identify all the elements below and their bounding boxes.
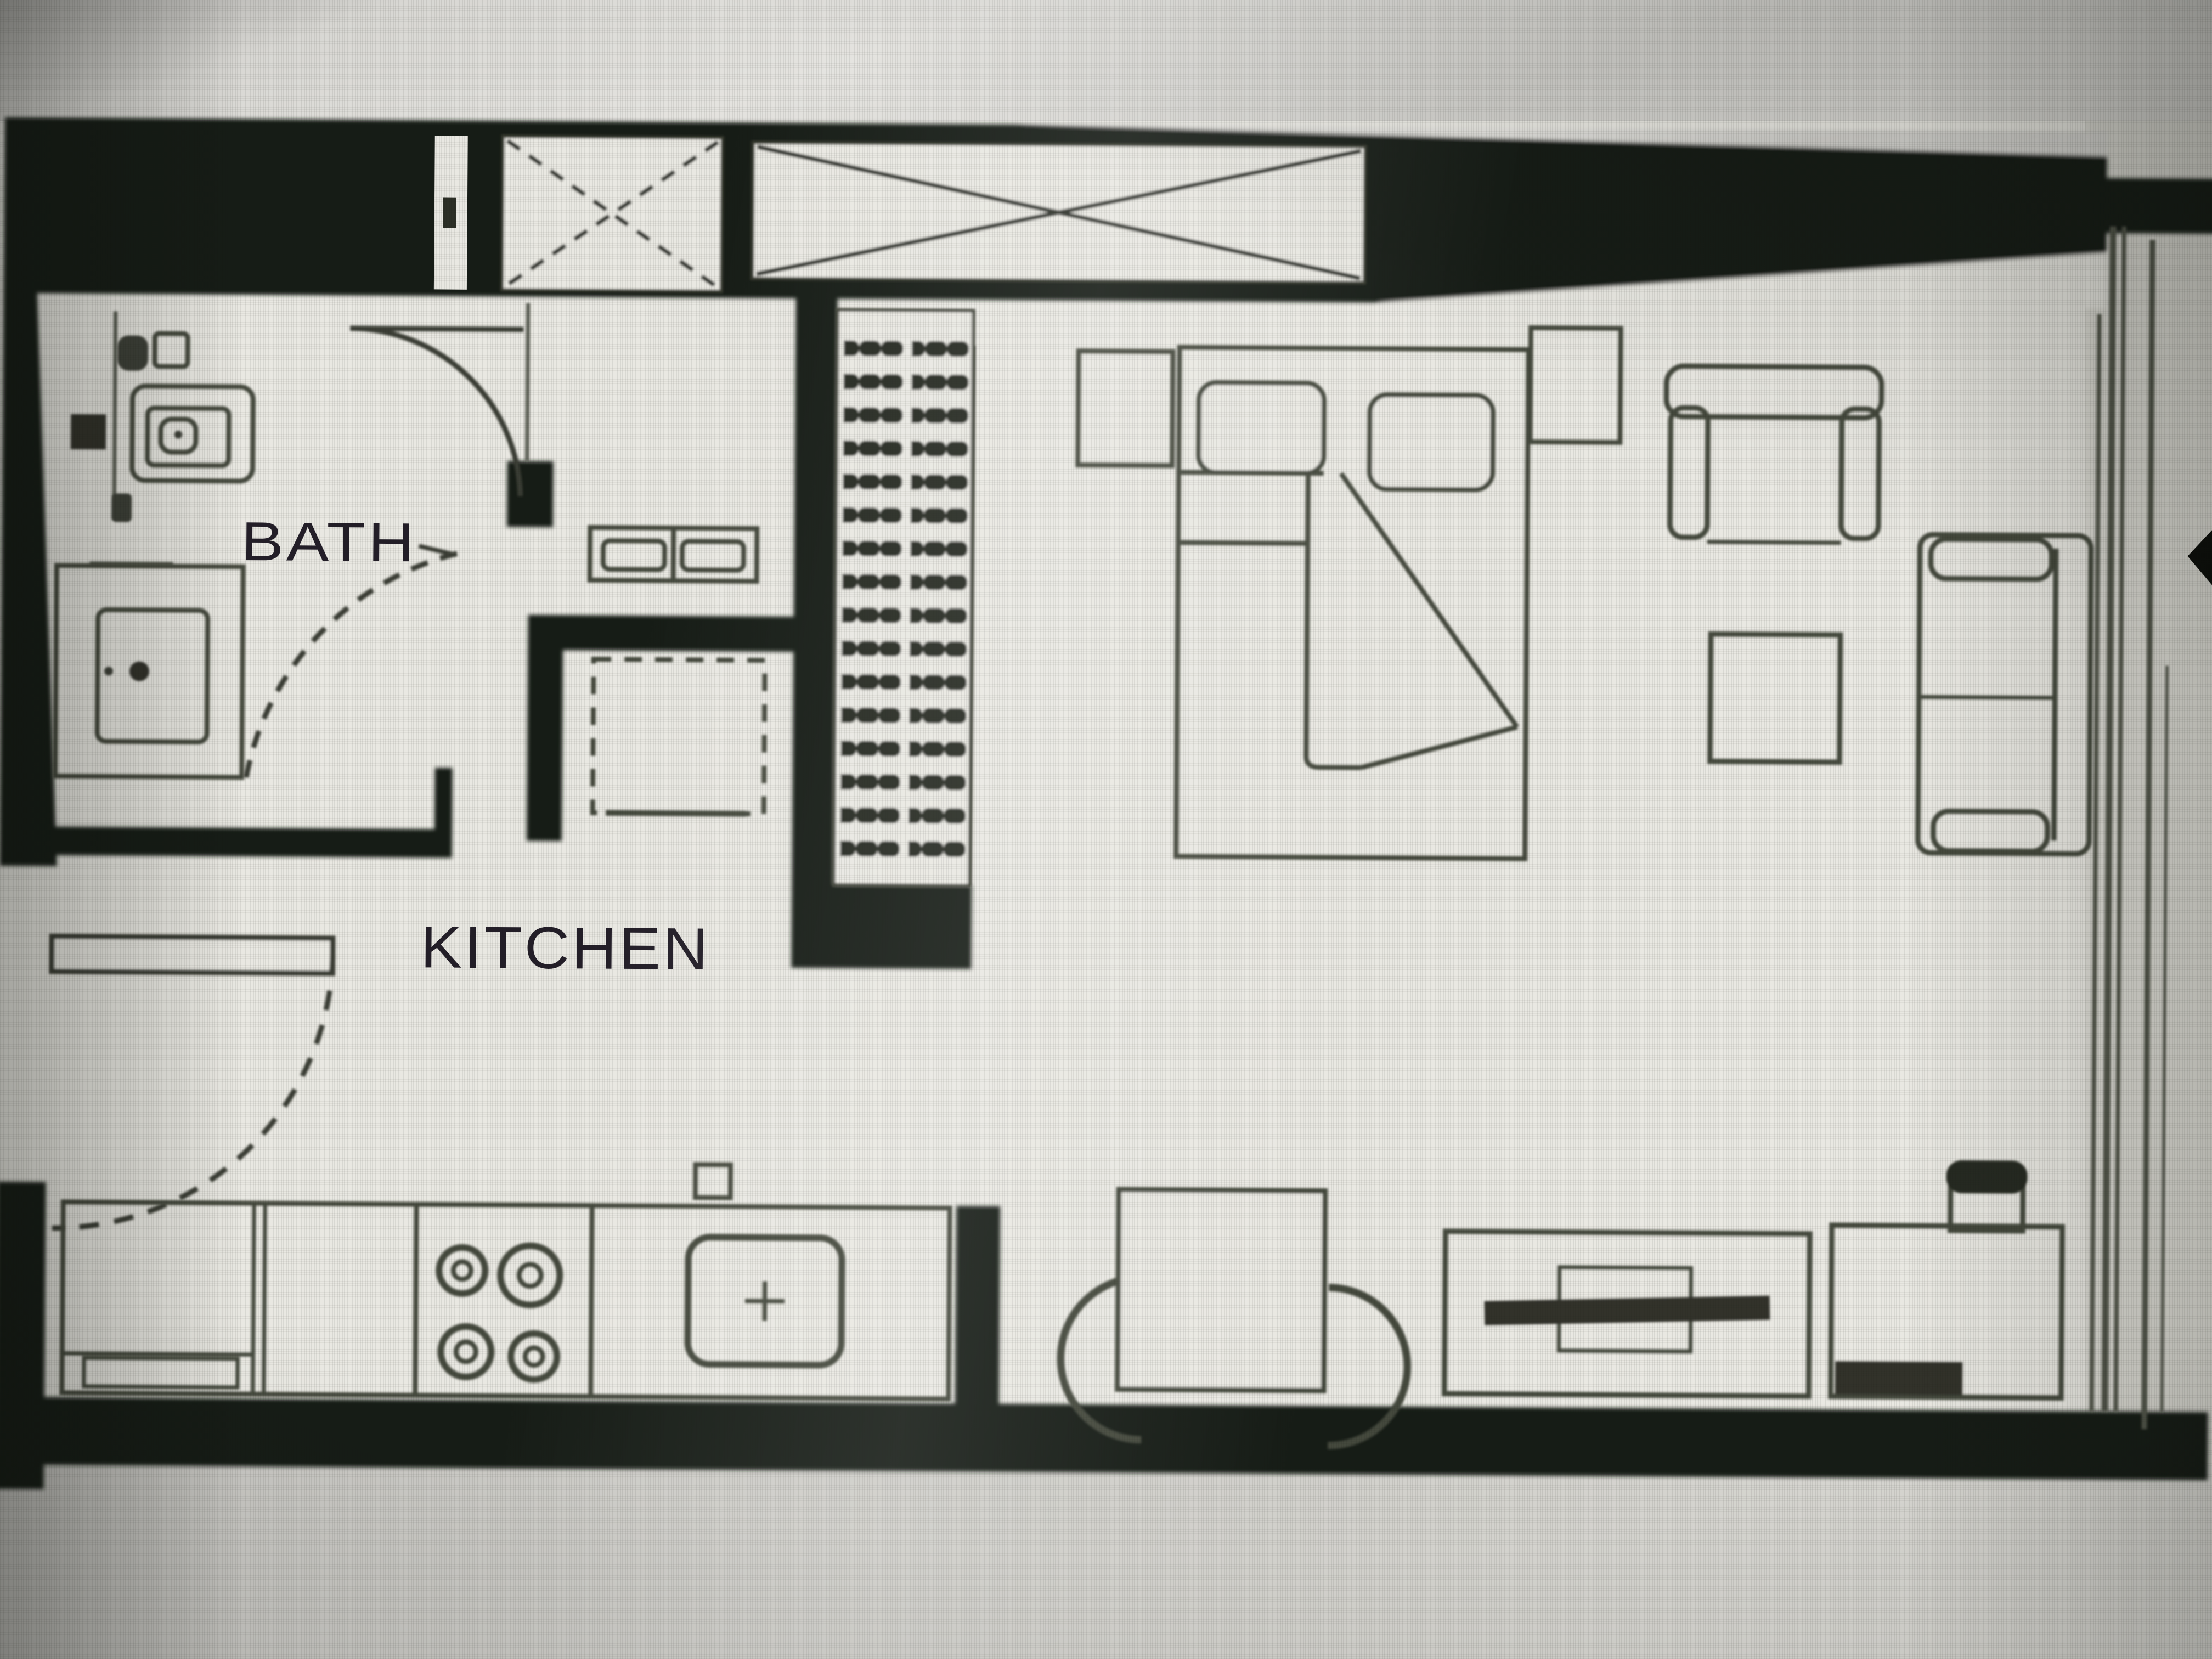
sideboard-dark-bar (1835, 1361, 1962, 1395)
wardrobe-hangers-right (908, 328, 969, 873)
wall-line-bath-fixture (114, 311, 116, 520)
shower-drain-icon (129, 662, 149, 681)
appliance-front-line (606, 813, 746, 814)
wall-kitchen-h (528, 615, 795, 652)
wardrobe (833, 310, 973, 886)
wall-bath-east-block (507, 461, 554, 527)
bed-sheet-line-1 (1179, 472, 1324, 473)
bed-sheet-connector (1308, 473, 1308, 544)
pillow-right (1369, 394, 1493, 490)
entry-door-leaf (52, 936, 332, 974)
armchair-seat-front (1707, 542, 1841, 543)
kettle-cap (1946, 1160, 2027, 1194)
wall-mounted-box-icon (71, 414, 106, 449)
counter-inner-line (62, 1353, 253, 1355)
wall-bath-south (22, 826, 435, 857)
wall-kitchen-v (527, 615, 563, 841)
top-wall-openings (434, 136, 1365, 296)
wall-closet-bottom (791, 884, 972, 969)
dining-table (1118, 1189, 1325, 1391)
door-jamb (435, 768, 453, 857)
shower-dot (104, 667, 113, 675)
wardrobe-hangers-left (840, 328, 903, 872)
floor-plan-canvas: BATH KITCHEN (0, 0, 2212, 1659)
dresser-divider (673, 528, 674, 580)
floor-plan-photo: BATH KITCHEN (0, 0, 2212, 1659)
kitchen-label: KITCHEN (420, 913, 710, 982)
page-bottom-margin (0, 1466, 2212, 1659)
wall-top-right-band (2107, 178, 2212, 234)
sofa-seat-divider (1919, 697, 2055, 698)
pillow-left (1199, 382, 1324, 473)
wall-line-bath-east (527, 303, 528, 461)
page-top-margin (0, 0, 2212, 136)
wall-closet-left (791, 298, 838, 968)
wall-kitchen-stub (955, 1206, 1000, 1472)
bed-sheet-line-2 (1178, 543, 1308, 544)
sofa-back-line (2054, 549, 2056, 840)
toilet-icon (117, 335, 148, 370)
vent-slot-mark (443, 198, 456, 228)
bath-label: BATH (241, 511, 417, 573)
fixture-dot (112, 493, 132, 522)
sink-drain-dot (174, 431, 183, 439)
